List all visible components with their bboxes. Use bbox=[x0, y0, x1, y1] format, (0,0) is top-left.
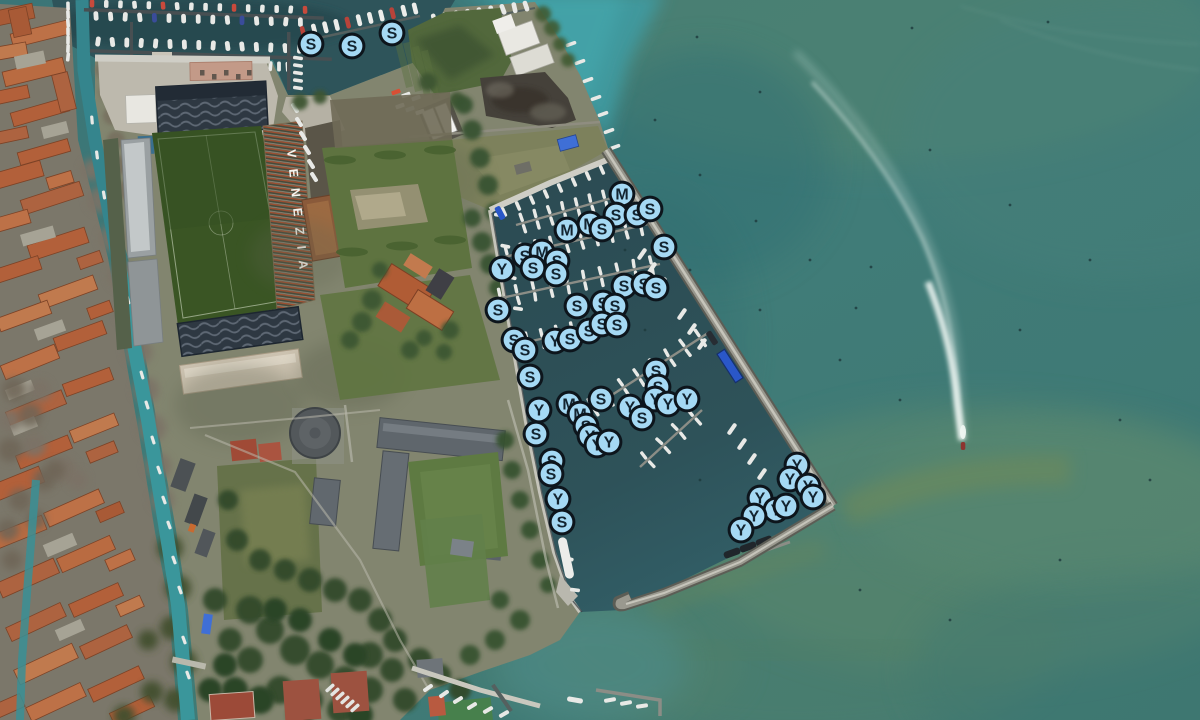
svg-text:S: S bbox=[551, 267, 562, 284]
svg-text:Y: Y bbox=[497, 262, 508, 279]
svg-text:S: S bbox=[651, 281, 662, 298]
svg-text:S: S bbox=[493, 303, 504, 320]
svg-text:S: S bbox=[387, 26, 398, 43]
svg-text:S: S bbox=[659, 240, 670, 257]
svg-text:S: S bbox=[619, 279, 630, 296]
svg-text:S: S bbox=[520, 343, 531, 360]
svg-text:S: S bbox=[645, 202, 656, 219]
svg-text:Y: Y bbox=[736, 523, 747, 540]
svg-text:S: S bbox=[546, 467, 557, 484]
svg-text:S: S bbox=[637, 411, 648, 428]
svg-text:S: S bbox=[347, 39, 358, 56]
svg-text:Y: Y bbox=[663, 397, 674, 414]
svg-text:S: S bbox=[306, 37, 317, 54]
svg-text:Y: Y bbox=[785, 472, 796, 489]
svg-text:Y: Y bbox=[604, 435, 615, 452]
svg-text:S: S bbox=[597, 222, 608, 239]
svg-text:S: S bbox=[525, 370, 536, 387]
svg-text:Y: Y bbox=[781, 499, 792, 516]
svg-text:S: S bbox=[572, 299, 583, 316]
svg-text:Y: Y bbox=[808, 490, 819, 507]
svg-text:M: M bbox=[615, 187, 628, 204]
svg-text:S: S bbox=[528, 261, 539, 278]
svg-text:Y: Y bbox=[534, 403, 545, 420]
svg-text:M: M bbox=[560, 223, 573, 240]
svg-text:S: S bbox=[612, 318, 623, 335]
svg-text:Y: Y bbox=[682, 392, 693, 409]
svg-text:Y: Y bbox=[553, 492, 564, 509]
svg-text:S: S bbox=[565, 332, 576, 349]
svg-text:S: S bbox=[557, 515, 568, 532]
svg-text:S: S bbox=[531, 427, 542, 444]
svg-text:S: S bbox=[596, 392, 607, 409]
